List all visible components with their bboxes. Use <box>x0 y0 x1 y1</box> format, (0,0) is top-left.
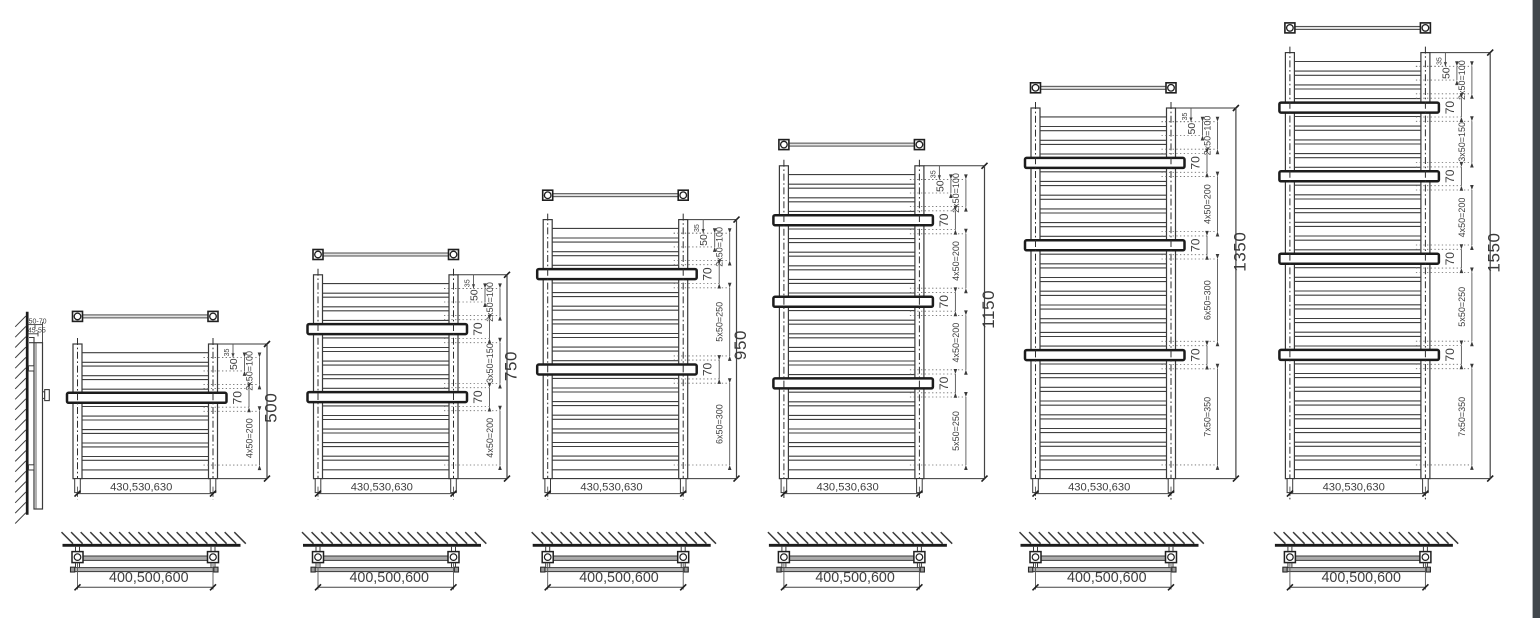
svg-text:1150: 1150 <box>979 290 998 329</box>
svg-text:35: 35 <box>930 170 937 178</box>
svg-text:3x50=150: 3x50=150 <box>485 343 495 383</box>
svg-text:400,500,600: 400,500,600 <box>109 570 189 586</box>
svg-text:7x50=350: 7x50=350 <box>1457 397 1467 437</box>
svg-text:5x50=250: 5x50=250 <box>715 302 725 342</box>
svg-text:70: 70 <box>1443 101 1457 115</box>
svg-text:400,500,600: 400,500,600 <box>1321 570 1401 586</box>
svg-text:950: 950 <box>731 330 750 360</box>
svg-text:35: 35 <box>1436 57 1443 65</box>
svg-text:70: 70 <box>1443 169 1457 183</box>
svg-text:400,500,600: 400,500,600 <box>579 570 659 586</box>
svg-text:4x50=200: 4x50=200 <box>951 241 961 281</box>
svg-text:50: 50 <box>1440 67 1452 79</box>
svg-text:70: 70 <box>1189 348 1203 362</box>
svg-text:430,530,630: 430,530,630 <box>110 481 172 493</box>
svg-text:70: 70 <box>1189 238 1203 252</box>
svg-text:4x50=200: 4x50=200 <box>1457 198 1467 238</box>
svg-text:430,530,630: 430,530,630 <box>580 481 642 493</box>
svg-text:430,530,630: 430,530,630 <box>351 481 413 493</box>
svg-text:70: 70 <box>471 322 485 336</box>
svg-text:3x50=150: 3x50=150 <box>1457 122 1467 162</box>
svg-text:35: 35 <box>694 224 701 232</box>
svg-text:50: 50 <box>469 289 481 301</box>
svg-text:400,500,600: 400,500,600 <box>1067 570 1147 586</box>
svg-text:50: 50 <box>698 234 710 246</box>
svg-text:430,530,630: 430,530,630 <box>816 481 878 493</box>
svg-text:35: 35 <box>224 349 231 357</box>
svg-text:430,530,630: 430,530,630 <box>1068 481 1130 493</box>
svg-text:1550: 1550 <box>1485 232 1504 272</box>
svg-text:70: 70 <box>937 376 951 390</box>
svg-text:70: 70 <box>471 390 485 404</box>
svg-text:4x50=200: 4x50=200 <box>1203 184 1213 224</box>
svg-text:4x50=200: 4x50=200 <box>485 418 495 458</box>
svg-text:7x50=350: 7x50=350 <box>1203 397 1213 437</box>
svg-text:400,500,600: 400,500,600 <box>349 570 429 586</box>
svg-text:70: 70 <box>1443 348 1457 362</box>
svg-text:70: 70 <box>231 391 245 405</box>
svg-text:4x50=200: 4x50=200 <box>245 418 255 458</box>
svg-text:70: 70 <box>701 363 715 377</box>
svg-text:1350: 1350 <box>1230 232 1249 272</box>
svg-text:6x50=300: 6x50=300 <box>1203 280 1213 320</box>
svg-text:70: 70 <box>1443 252 1457 266</box>
svg-text:70: 70 <box>701 267 715 281</box>
svg-text:50: 50 <box>1186 123 1198 135</box>
svg-text:50: 50 <box>228 358 240 370</box>
svg-text:70: 70 <box>937 295 951 309</box>
svg-text:35: 35 <box>1182 113 1189 121</box>
svg-text:750: 750 <box>502 351 521 381</box>
svg-text:500: 500 <box>262 393 281 423</box>
svg-text:5x50=250: 5x50=250 <box>951 411 961 451</box>
svg-text:50: 50 <box>934 180 946 192</box>
svg-text:4x50=200: 4x50=200 <box>951 323 961 363</box>
svg-text:5x50=250: 5x50=250 <box>1457 287 1467 327</box>
svg-text:6x50=300: 6x50=300 <box>715 404 725 444</box>
svg-text:430,530,630: 430,530,630 <box>1323 481 1385 493</box>
svg-text:400,500,600: 400,500,600 <box>815 570 895 586</box>
svg-text:70: 70 <box>937 213 951 227</box>
svg-text:35: 35 <box>465 279 472 287</box>
svg-text:70: 70 <box>1189 156 1203 170</box>
